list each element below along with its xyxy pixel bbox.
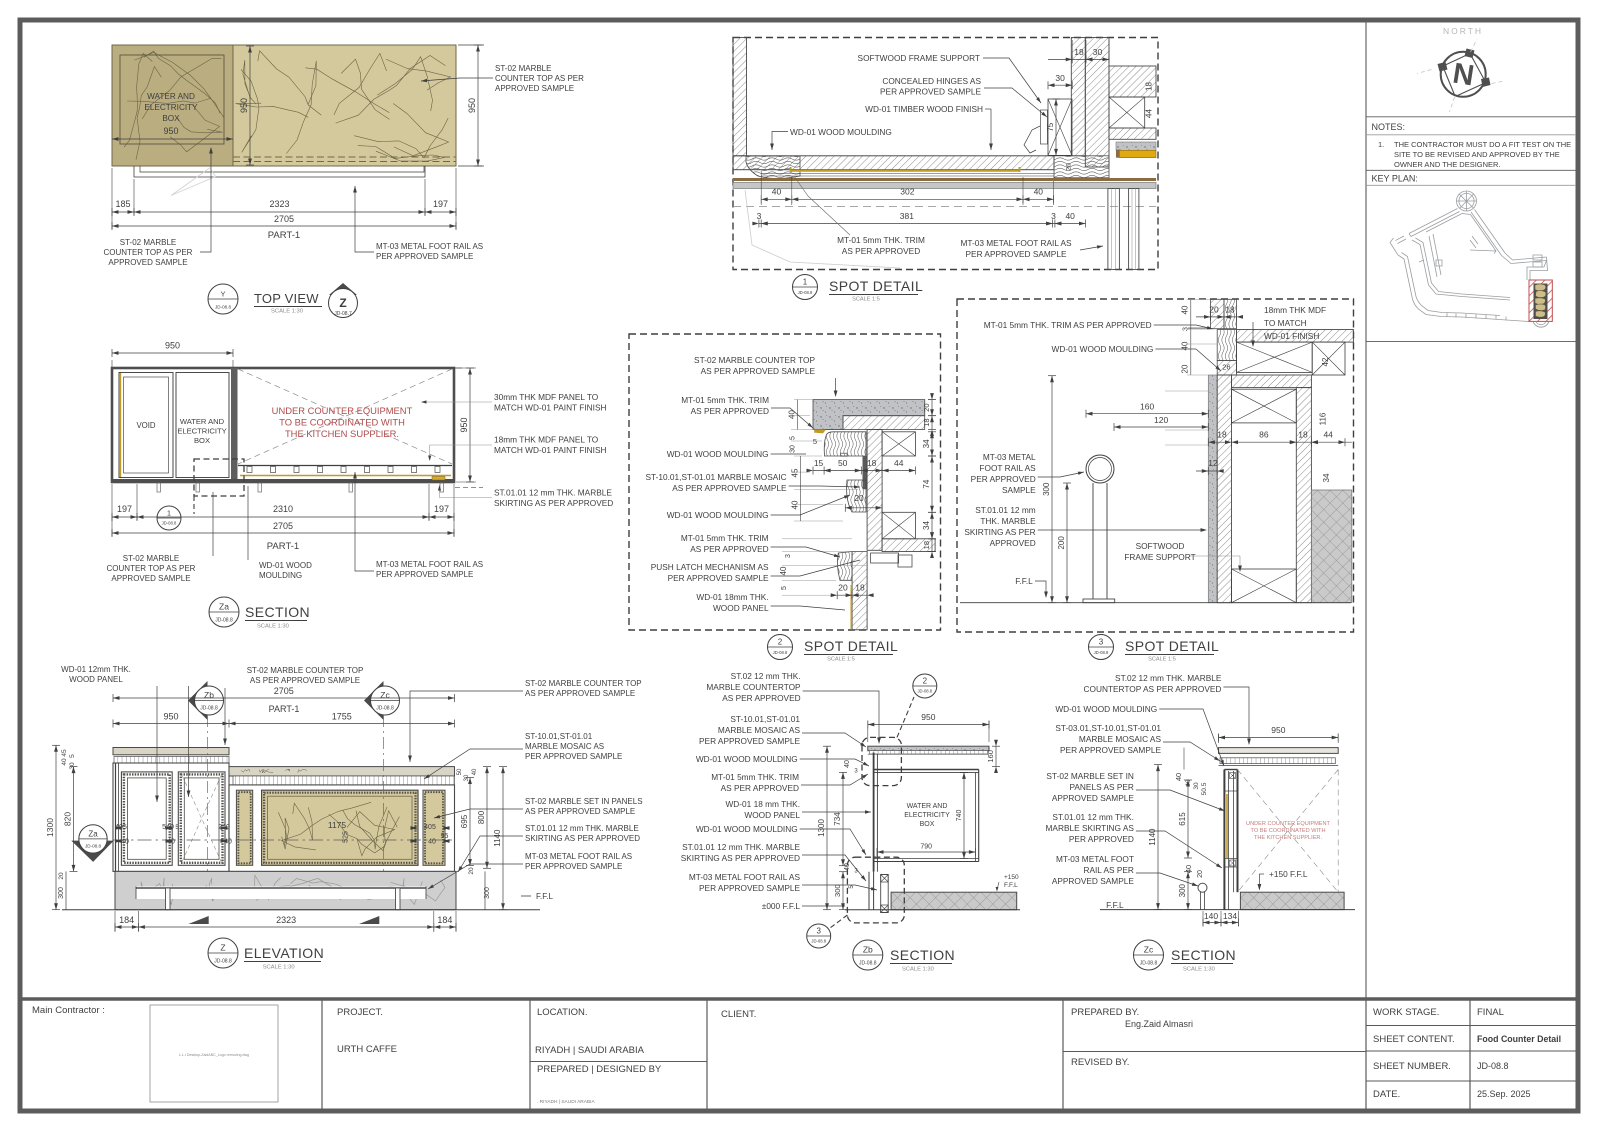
svg-text:SCALE 1:30: SCALE 1:30 (257, 624, 289, 630)
svg-text:ST-02 MARBLE: ST-02 MARBLE (123, 554, 179, 563)
svg-text:40: 40 (791, 500, 800, 509)
svg-text:SCALE 1:5: SCALE 1:5 (1148, 657, 1176, 663)
svg-text:ELEVATION: ELEVATION (244, 945, 324, 961)
svg-text:JD-08.8: JD-08.8 (200, 706, 218, 712)
svg-text:30mm THK MDF PANEL TO: 30mm THK MDF PANEL TO (494, 392, 599, 402)
svg-text:WOOD PANEL: WOOD PANEL (69, 675, 123, 684)
svg-text:MARBLE MOSAIC AS: MARBLE MOSAIC AS (718, 725, 801, 735)
svg-text:ST-02 MARBLE SET IN PANELS: ST-02 MARBLE SET IN PANELS (525, 797, 643, 806)
svg-text:SCALE 1:30: SCALE 1:30 (271, 309, 303, 315)
svg-text:SCALE 1:30: SCALE 1:30 (902, 967, 934, 973)
svg-text:COUNTER TOP AS PER: COUNTER TOP AS PER (107, 564, 196, 573)
svg-text:PER APPROVED SAMPLE: PER APPROVED SAMPLE (699, 736, 800, 746)
svg-text:40: 40 (121, 839, 129, 846)
svg-text:SOFTWOOD: SOFTWOOD (1136, 541, 1185, 551)
svg-text:SCALE 1:5: SCALE 1:5 (852, 297, 880, 303)
svg-text:URTH CAFFE: URTH CAFFE (337, 1044, 397, 1055)
svg-text:SPOT DETAIL: SPOT DETAIL (804, 638, 898, 654)
svg-text:20: 20 (1180, 364, 1189, 373)
svg-text:ST-02 MARBLE COUNTER TOP: ST-02 MARBLE COUNTER TOP (525, 679, 642, 688)
svg-text:JD-08.8: JD-08.8 (917, 689, 932, 694)
svg-text:TO BE COORDINATED WITH: TO BE COORDINATED WITH (1251, 828, 1326, 834)
svg-text:. RIYADH | SAUDI ARABIA: . RIYADH | SAUDI ARABIA (537, 1099, 595, 1105)
svg-text:THE KITCHEN SUPPLIER.: THE KITCHEN SUPPLIER. (1254, 835, 1323, 841)
svg-text:2323: 2323 (269, 199, 289, 209)
svg-text:26: 26 (1065, 163, 1072, 171)
svg-text:950: 950 (459, 417, 469, 432)
svg-text:1300: 1300 (45, 818, 55, 837)
svg-text:SHEET NUMBER.: SHEET NUMBER. (1373, 1061, 1451, 1072)
svg-text:300: 300 (1042, 482, 1051, 496)
svg-text:SECTION: SECTION (890, 947, 955, 963)
svg-text:SECTION: SECTION (1171, 947, 1236, 963)
svg-text:160: 160 (1140, 402, 1154, 412)
svg-text:75: 75 (1046, 122, 1055, 131)
svg-text:ST.01.01 12 mm: ST.01.01 12 mm (975, 505, 1036, 515)
svg-text:40: 40 (788, 410, 797, 419)
svg-text:1300: 1300 (817, 819, 826, 837)
svg-text:2: 2 (923, 677, 928, 686)
svg-text:2: 2 (778, 638, 783, 647)
svg-text:WD-01 18 mm THK.: WD-01 18 mm THK. (725, 799, 800, 809)
svg-text:THE KITCHEN SUPPLIER.: THE KITCHEN SUPPLIER. (285, 428, 399, 439)
svg-text:44: 44 (1323, 430, 1333, 440)
svg-text:RIYADH | SAUDI ARABIA: RIYADH | SAUDI ARABIA (535, 1045, 645, 1056)
svg-text:Za: Za (88, 829, 98, 838)
svg-text:18: 18 (1145, 82, 1154, 91)
svg-text:20: 20 (1197, 870, 1204, 878)
svg-text:PER APPROVED SAMPLE: PER APPROVED SAMPLE (966, 249, 1067, 259)
svg-text:AS PER APPROVED SAMPLE: AS PER APPROVED SAMPLE (525, 689, 635, 698)
svg-text:JD-08.8: JD-08.8 (162, 521, 177, 526)
svg-text:JD-08.8: JD-08.8 (376, 706, 394, 712)
svg-text:MT-03 METAL FOOT RAIL AS: MT-03 METAL FOOT RAIL AS (525, 852, 632, 861)
svg-text:34: 34 (1322, 473, 1331, 482)
svg-text:18: 18 (1217, 430, 1227, 440)
svg-text:THE CONTRACTOR MUST DO A FIT T: THE CONTRACTOR MUST DO A FIT TEST ON THE (1394, 140, 1571, 149)
svg-text:2323: 2323 (276, 915, 296, 925)
svg-text:AS PER APPROVED: AS PER APPROVED (691, 406, 769, 416)
svg-text:F.F.L: F.F.L (1004, 882, 1018, 889)
svg-text:PER APPROVED SAMPLE: PER APPROVED SAMPLE (699, 883, 800, 893)
svg-text:3: 3 (785, 554, 792, 558)
svg-text:JD-08.7: JD-08.7 (334, 311, 352, 317)
svg-text:NOTES:: NOTES: (1372, 122, 1406, 132)
svg-text:2705: 2705 (274, 686, 294, 696)
svg-text:950: 950 (467, 98, 477, 113)
svg-text:PROJECT.: PROJECT. (337, 1007, 383, 1018)
svg-text:18: 18 (867, 458, 877, 468)
svg-text:JD-08.8: JD-08.8 (1094, 650, 1109, 655)
svg-text:APPROVED SAMPLE: APPROVED SAMPLE (111, 574, 190, 583)
svg-text:12: 12 (1208, 458, 1218, 468)
svg-text:50.5: 50.5 (1201, 782, 1208, 795)
svg-text:DATE.: DATE. (1373, 1089, 1400, 1100)
svg-text:MT-01 5mm THK. TRIM: MT-01 5mm THK. TRIM (711, 772, 799, 782)
svg-text:PER APPROVED SAMPLE: PER APPROVED SAMPLE (1060, 745, 1161, 755)
svg-text:734: 734 (833, 812, 842, 826)
svg-text:1.: 1. (1378, 140, 1384, 149)
svg-text:Food Counter Detail: Food Counter Detail (1477, 1034, 1561, 1044)
svg-text:MATCH WD-01 PAINT FINISH: MATCH WD-01 PAINT FINISH (494, 403, 606, 413)
svg-text:300: 300 (833, 884, 842, 897)
svg-text:40: 40 (472, 768, 478, 775)
svg-text:184: 184 (119, 915, 134, 925)
svg-text:JD-08.8: JD-08.8 (214, 959, 232, 965)
svg-text:800: 800 (477, 810, 486, 824)
svg-text:MATCH WD-01 PAINT FINISH: MATCH WD-01 PAINT FINISH (494, 445, 606, 455)
svg-text:3: 3 (816, 927, 821, 936)
svg-text:40: 40 (1174, 773, 1183, 781)
svg-text:ST.01.01 12 mm THK. MARBLE: ST.01.01 12 mm THK. MARBLE (682, 842, 800, 852)
svg-text:1175: 1175 (328, 820, 347, 830)
svg-text:3: 3 (1182, 327, 1189, 331)
svg-text:20: 20 (838, 583, 848, 593)
svg-text:ELECTRICITY: ELECTRICITY (144, 103, 198, 112)
svg-text:18: 18 (1298, 430, 1308, 440)
svg-text:WD-01 18mm THK.: WD-01 18mm THK. (696, 592, 768, 602)
svg-text:WD-01 WOOD MOULDING: WD-01 WOOD MOULDING (667, 449, 769, 459)
svg-text:18mm THK MDF PANEL TO: 18mm THK MDF PANEL TO (494, 435, 599, 445)
svg-text:1140: 1140 (1148, 828, 1157, 846)
svg-text:JD-08.8: JD-08.8 (215, 305, 232, 310)
svg-text:ST-02 MARBLE COUNTER TOP: ST-02 MARBLE COUNTER TOP (247, 666, 364, 675)
svg-text:30: 30 (464, 774, 470, 781)
svg-text:MT-01 5mm THK. TRIM: MT-01 5mm THK. TRIM (837, 235, 925, 245)
svg-text:PER APPROVED SAMPLE: PER APPROVED SAMPLE (376, 570, 473, 579)
svg-text:PART-1: PART-1 (269, 704, 300, 714)
svg-text:F.F.L: F.F.L (536, 892, 553, 901)
svg-text:PANELS AS PER: PANELS AS PER (1069, 782, 1133, 792)
svg-text:Zc: Zc (380, 690, 390, 700)
svg-text:AS PER APPROVED SAMPLE: AS PER APPROVED SAMPLE (250, 676, 360, 685)
svg-text:3: 3 (1051, 211, 1056, 221)
svg-text:TO MATCH: TO MATCH (1264, 318, 1307, 328)
svg-text:LOCATION.: LOCATION. (537, 1007, 588, 1018)
svg-text:WOOD PANEL: WOOD PANEL (713, 603, 769, 613)
svg-text:Za: Za (219, 602, 229, 612)
svg-text:Eng.Zaid Almasri: Eng.Zaid Almasri (1125, 1019, 1193, 1029)
svg-text:40: 40 (428, 839, 436, 846)
svg-text:525: 525 (343, 831, 350, 843)
svg-text:MARBLE MOSAIC AS: MARBLE MOSAIC AS (1079, 734, 1162, 744)
svg-text:18: 18 (922, 541, 931, 549)
svg-text:1755: 1755 (332, 712, 352, 722)
svg-text:CONCEALED HINGES AS: CONCEALED HINGES AS (882, 76, 981, 86)
svg-text:34: 34 (922, 521, 931, 530)
svg-text:184: 184 (437, 915, 452, 925)
svg-text:615: 615 (1178, 812, 1187, 826)
svg-text:381: 381 (900, 211, 914, 221)
svg-text:BOX: BOX (162, 114, 180, 123)
svg-text:JD-08.8: JD-08.8 (773, 650, 788, 655)
svg-text:UNDER COUNTER EQUIPMENT: UNDER COUNTER EQUIPMENT (1246, 821, 1330, 827)
svg-text:40: 40 (1180, 305, 1189, 314)
svg-text:200: 200 (1057, 536, 1066, 550)
svg-text:30: 30 (1193, 782, 1200, 790)
svg-text:20: 20 (1209, 305, 1219, 315)
svg-text:ST-02 MARBLE SET IN: ST-02 MARBLE SET IN (1046, 771, 1133, 781)
svg-text:18: 18 (1074, 47, 1084, 57)
svg-text:74: 74 (922, 479, 931, 488)
svg-text:JD-08.8: JD-08.8 (215, 618, 233, 624)
svg-text:SCALE 1:30: SCALE 1:30 (1183, 967, 1215, 973)
svg-text:AS PER APPROVED: AS PER APPROVED (722, 693, 800, 703)
svg-text:SOFTWOOD FRAME SUPPORT: SOFTWOOD FRAME SUPPORT (858, 53, 980, 63)
svg-text:116: 116 (1319, 412, 1328, 425)
svg-text:SAMPLE: SAMPLE (1002, 485, 1036, 495)
svg-text:WD-01 WOOD MOULDING: WD-01 WOOD MOULDING (1055, 704, 1157, 714)
svg-text:ELECTRICITY: ELECTRICITY (177, 427, 226, 436)
svg-text:18mm THK MDF: 18mm THK MDF (1264, 305, 1326, 315)
svg-text:±000 F.F.L: ±000 F.F.L (762, 901, 801, 911)
svg-text:Z: Z (220, 943, 225, 953)
svg-text:740: 740 (956, 810, 963, 822)
svg-text:302: 302 (900, 187, 914, 197)
svg-text:160: 160 (986, 750, 995, 763)
svg-text:ST.02 12 mm THK. MARBLE: ST.02 12 mm THK. MARBLE (1115, 673, 1222, 683)
svg-text:WD-01 WOOD MOULDING: WD-01 WOOD MOULDING (1052, 344, 1154, 354)
svg-text:40: 40 (1065, 211, 1075, 221)
svg-text:FINAL: FINAL (1477, 1007, 1504, 1018)
svg-text:MT-03 METAL FOOT RAIL AS: MT-03 METAL FOOT RAIL AS (960, 238, 1072, 248)
svg-text:WD-01 WOOD MOULDING: WD-01 WOOD MOULDING (696, 754, 798, 764)
svg-text:25.Sep. 2025: 25.Sep. 2025 (1477, 1089, 1531, 1099)
svg-text:1: 1 (167, 509, 171, 518)
svg-text:3: 3 (757, 211, 762, 221)
svg-text:45: 45 (791, 468, 800, 477)
svg-text:86: 86 (1259, 430, 1269, 440)
svg-text:PER APPROVED SAMPLE: PER APPROVED SAMPLE (668, 573, 769, 583)
svg-text:TO BE COORDINATED WITH: TO BE COORDINATED WITH (279, 417, 405, 428)
svg-text:PER APPROVED SAMPLE: PER APPROVED SAMPLE (525, 862, 622, 871)
svg-text:2705: 2705 (273, 521, 293, 531)
svg-text:PER APPROVED SAMPLE: PER APPROVED SAMPLE (880, 87, 981, 97)
svg-text:ST-10.01,ST-01.01: ST-10.01,ST-01.01 (525, 732, 593, 741)
svg-text:SHEET CONTENT.: SHEET CONTENT. (1373, 1034, 1455, 1045)
svg-text:SECTION: SECTION (245, 604, 310, 620)
svg-text:SITE TO BE REVISED AND APPROVE: SITE TO BE REVISED AND APPROVED BY THE (1394, 150, 1560, 159)
svg-text:APPROVED: APPROVED (990, 538, 1036, 548)
svg-text:AS PER APPROVED: AS PER APPROVED (842, 246, 920, 256)
svg-text:40: 40 (844, 863, 851, 871)
svg-text:MT-03 METAL FOOT RAIL AS: MT-03 METAL FOOT RAIL AS (376, 560, 483, 569)
svg-text:MT-01 5mm THK. TRIM: MT-01 5mm THK. TRIM (681, 395, 769, 405)
svg-text:MT-01 5mm THK. TRIM: MT-01 5mm THK. TRIM (681, 533, 769, 543)
svg-text:2705: 2705 (274, 214, 294, 224)
svg-text:SCALE 1:30: SCALE 1:30 (263, 965, 295, 971)
svg-text:185: 185 (115, 199, 130, 209)
svg-text:790: 790 (920, 844, 932, 851)
svg-text:FOOT RAIL AS: FOOT RAIL AS (979, 463, 1036, 473)
svg-text:FRAME SUPPORT: FRAME SUPPORT (1124, 552, 1195, 562)
svg-text:COUNTER TOP AS PER: COUNTER TOP AS PER (104, 248, 193, 257)
svg-text:30: 30 (1093, 47, 1103, 57)
svg-text:1: 1 (803, 278, 808, 287)
svg-text:197: 197 (117, 504, 132, 514)
svg-text:UNDER COUNTER EQUIPMENT: UNDER COUNTER EQUIPMENT (272, 405, 413, 416)
svg-text:950: 950 (165, 341, 180, 351)
svg-text:ST-10.01,ST-01.01: ST-10.01,ST-01.01 (730, 714, 800, 724)
svg-text:820: 820 (63, 812, 73, 826)
svg-text:2310: 2310 (273, 504, 293, 514)
svg-text:695: 695 (460, 814, 469, 828)
svg-text:30: 30 (1055, 73, 1065, 83)
svg-text:SKIRTING AS PER APPROVED: SKIRTING AS PER APPROVED (681, 853, 800, 863)
svg-text:18: 18 (1225, 305, 1235, 315)
svg-text:5: 5 (813, 437, 817, 446)
svg-text:950: 950 (163, 126, 178, 136)
svg-text:WD-01 TIMBER WOOD FINISH: WD-01 TIMBER WOOD FINISH (865, 104, 983, 114)
svg-text:95: 95 (441, 833, 449, 840)
svg-text:950: 950 (163, 712, 178, 722)
svg-text:Zb: Zb (204, 690, 214, 700)
svg-text:44: 44 (1145, 109, 1154, 118)
svg-text:MARBLE MOSAIC AS: MARBLE MOSAIC AS (525, 742, 604, 751)
svg-text:197: 197 (434, 504, 449, 514)
svg-text:JD-08.8: JD-08.8 (1477, 1061, 1509, 1071)
svg-text:5: 5 (69, 754, 76, 758)
svg-text:TOP VIEW: TOP VIEW (254, 291, 319, 306)
svg-text:PER APPROVED: PER APPROVED (971, 474, 1036, 484)
svg-text:ST-10.01,ST-01.01 MARBLE MOSAI: ST-10.01,ST-01.01 MARBLE MOSAIC (645, 472, 786, 482)
svg-text:20: 20 (922, 403, 931, 411)
svg-text:APPROVED SAMPLE: APPROVED SAMPLE (495, 84, 574, 93)
svg-text:AS PER APPROVED SAMPLE: AS PER APPROVED SAMPLE (701, 366, 816, 376)
svg-text:JD-08.8: JD-08.8 (1140, 961, 1158, 967)
svg-text:Y: Y (220, 290, 225, 299)
svg-text:AS PER APPROVED: AS PER APPROVED (721, 783, 799, 793)
svg-text:WD-01 WOOD: WD-01 WOOD (259, 561, 312, 570)
svg-text:BOX: BOX (194, 436, 210, 445)
svg-text:15: 15 (814, 458, 824, 468)
svg-text:JD-08.8: JD-08.8 (85, 844, 102, 849)
svg-text:PART-1: PART-1 (267, 541, 299, 552)
svg-text:APPROVED SAMPLE: APPROVED SAMPLE (1052, 876, 1135, 886)
svg-text:WD-01 WOOD MOULDING: WD-01 WOOD MOULDING (696, 824, 798, 834)
svg-text:+150 F.F.L: +150 F.F.L (1269, 869, 1308, 879)
svg-text:40: 40 (61, 758, 68, 766)
svg-text:5: 5 (790, 436, 797, 440)
svg-text:20: 20 (854, 493, 864, 503)
svg-text:950: 950 (921, 712, 935, 722)
svg-text:L.L.I Desktop-ZaidABC_Logo rem: L.L.I Desktop-ZaidABC_Logo removing.dwg (179, 1053, 249, 1057)
svg-text:26: 26 (1222, 363, 1230, 372)
svg-text:VOID: VOID (136, 421, 155, 430)
svg-text:ST.01.01 12 mm THK.: ST.01.01 12 mm THK. (1052, 812, 1133, 822)
svg-text:950: 950 (1271, 725, 1285, 735)
svg-text:ST.01.01 12 mm THK. MARBLE: ST.01.01 12 mm THK. MARBLE (494, 488, 612, 498)
svg-text:45: 45 (61, 749, 68, 757)
svg-text:WD-01 FINISH: WD-01 FINISH (1264, 331, 1319, 341)
svg-text:40: 40 (772, 187, 782, 197)
svg-text:MARBLE COUNTERTOP: MARBLE COUNTERTOP (706, 682, 801, 692)
svg-text:120: 120 (1154, 415, 1168, 425)
svg-text:JD-08.8: JD-08.8 (811, 939, 826, 944)
svg-text:SKIRTING AS PER APPROVED: SKIRTING AS PER APPROVED (494, 498, 613, 508)
svg-text:WORK STAGE.: WORK STAGE. (1373, 1007, 1439, 1018)
svg-text:PUSH LATCH MECHANISM AS: PUSH LATCH MECHANISM AS (651, 562, 769, 572)
svg-text:ST.02 12 mm THK.: ST.02 12 mm THK. (731, 671, 801, 681)
svg-text:F.F.L: F.F.L (1015, 576, 1033, 586)
svg-text:SCALE 1:5: SCALE 1:5 (827, 657, 855, 663)
svg-text:MT-03 METAL: MT-03 METAL (983, 452, 1036, 462)
svg-text:RAIL AS PER: RAIL AS PER (1083, 865, 1133, 875)
svg-text:PER APPROVED SAMPLE: PER APPROVED SAMPLE (376, 252, 473, 261)
svg-text:34: 34 (922, 439, 931, 448)
svg-text:Main Contractor :: Main Contractor : (32, 1005, 105, 1016)
svg-text:950: 950 (239, 98, 249, 113)
svg-text:MARBLE SKIRTING AS: MARBLE SKIRTING AS (1046, 823, 1135, 833)
svg-text:NORTH: NORTH (1443, 26, 1483, 36)
svg-text:44: 44 (894, 458, 904, 468)
svg-text:WATER AND: WATER AND (180, 417, 225, 426)
svg-text:ST.01.01 12 mm THK. MARBLE: ST.01.01 12 mm THK. MARBLE (525, 824, 639, 833)
svg-text:THK. MARBLE: THK. MARBLE (980, 516, 1036, 526)
svg-text:JD-08.8: JD-08.8 (798, 290, 813, 295)
svg-text:300: 300 (58, 887, 65, 899)
svg-text:18: 18 (855, 583, 865, 593)
svg-text:3: 3 (1099, 638, 1104, 647)
svg-text:WOOD PANEL: WOOD PANEL (744, 810, 800, 820)
svg-text:WD-01 WOOD MOULDING: WD-01 WOOD MOULDING (667, 510, 769, 520)
svg-text:ST-03.01,ST-10.01,ST-01.01: ST-03.01,ST-10.01,ST-01.01 (1055, 723, 1161, 733)
svg-text:AS PER APPROVED SAMPLE: AS PER APPROVED SAMPLE (672, 483, 787, 493)
svg-text:50: 50 (457, 768, 463, 775)
svg-text:50: 50 (838, 458, 848, 468)
svg-text:SKIRTING AS PER APPROVED: SKIRTING AS PER APPROVED (525, 834, 640, 843)
svg-text:REVISED BY.: REVISED BY. (1071, 1057, 1129, 1068)
svg-text:WATER AND: WATER AND (907, 803, 948, 810)
svg-text:197: 197 (433, 199, 448, 209)
svg-text:ST-02 MARBLE COUNTER TOP: ST-02 MARBLE COUNTER TOP (694, 355, 815, 365)
svg-text:PER APPROVED: PER APPROVED (1069, 834, 1134, 844)
svg-text:MT-01 5mm THK. TRIM AS PER APP: MT-01 5mm THK. TRIM AS PER APPROVED (984, 320, 1152, 330)
svg-text:PREPARED BY.: PREPARED BY. (1071, 1007, 1139, 1018)
svg-text:Zc: Zc (1144, 945, 1154, 955)
svg-text:20: 20 (58, 872, 65, 880)
svg-text:140: 140 (1204, 911, 1218, 921)
svg-text:APPROVED SAMPLE: APPROVED SAMPLE (1052, 793, 1135, 803)
svg-text:30: 30 (69, 762, 76, 770)
svg-text:18: 18 (922, 418, 931, 426)
svg-text:APPROVED SAMPLE: APPROVED SAMPLE (108, 258, 187, 267)
svg-text:40: 40 (779, 566, 788, 575)
svg-text:ELECTRICITY: ELECTRICITY (904, 812, 950, 819)
svg-text:WD-01 12mm THK.: WD-01 12mm THK. (61, 665, 131, 674)
svg-text:PART-1: PART-1 (268, 230, 300, 241)
svg-text:ST-02 MARBLE: ST-02 MARBLE (495, 64, 551, 73)
svg-text:SPOT DETAIL: SPOT DETAIL (1125, 638, 1219, 654)
svg-text:134: 134 (1223, 911, 1237, 921)
svg-text:COUNTERTOP AS PER APPROVED: COUNTERTOP AS PER APPROVED (1084, 684, 1222, 694)
svg-text:AS PER APPROVED: AS PER APPROVED (690, 544, 768, 554)
svg-text:COUNTER TOP AS PER: COUNTER TOP AS PER (495, 74, 584, 83)
svg-text:20: 20 (468, 867, 475, 875)
svg-text:30: 30 (790, 445, 797, 453)
svg-text:KEY PLAN:: KEY PLAN: (1372, 174, 1418, 184)
svg-text:42: 42 (1321, 357, 1330, 366)
svg-text:WATER AND: WATER AND (147, 92, 195, 101)
svg-text:PREPARED | DESIGNED BY: PREPARED | DESIGNED BY (537, 1064, 662, 1075)
svg-text:MT-03 METAL FOOT: MT-03 METAL FOOT (1056, 854, 1134, 864)
svg-text:40: 40 (844, 760, 851, 768)
svg-text:+150: +150 (1004, 874, 1019, 881)
svg-text:SKIRTING AS PER: SKIRTING AS PER (964, 527, 1035, 537)
svg-text:CLIENT.: CLIENT. (721, 1009, 756, 1020)
svg-text:PER APPROVED SAMPLE: PER APPROVED SAMPLE (525, 752, 622, 761)
svg-text:Zb: Zb (863, 945, 873, 955)
